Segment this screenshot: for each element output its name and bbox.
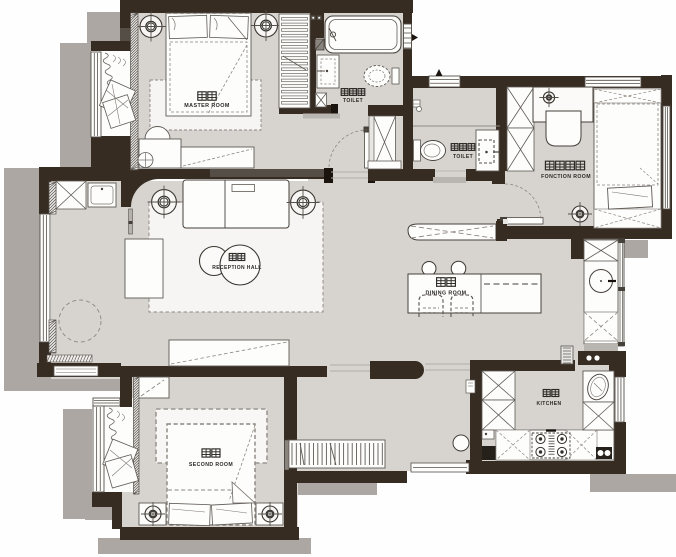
- svg-text:SECOND ROOM: SECOND ROOM: [189, 462, 233, 468]
- svg-text:FONCTION ROOM: FONCTION ROOM: [541, 174, 591, 180]
- svg-text:TOILET: TOILET: [453, 154, 473, 160]
- svg-text:KITCHEN: KITCHEN: [536, 401, 561, 407]
- svg-text:RECEPTION HALL: RECEPTION HALL: [212, 265, 262, 271]
- svg-text:MASTER ROOM: MASTER ROOM: [184, 103, 230, 109]
- svg-text:TOILET: TOILET: [343, 98, 363, 104]
- svg-text:DINING ROOM: DINING ROOM: [426, 291, 467, 297]
